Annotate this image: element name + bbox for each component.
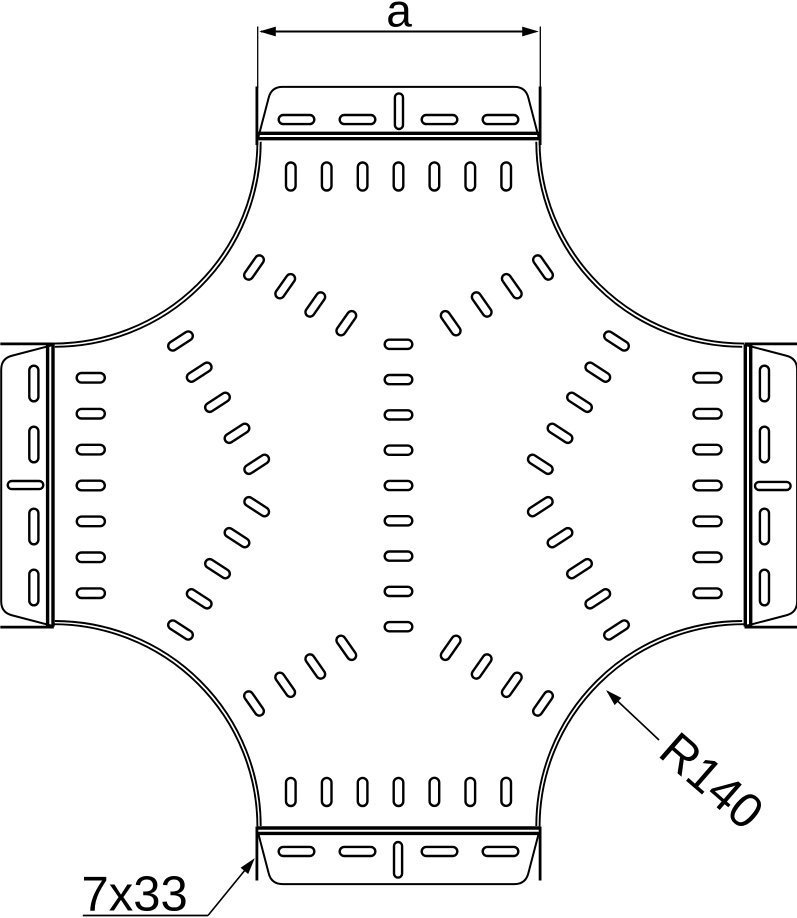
svg-text:a: a <box>386 0 412 37</box>
svg-text:7x33: 7x33 <box>82 868 188 918</box>
svg-text:R140: R140 <box>649 723 773 841</box>
